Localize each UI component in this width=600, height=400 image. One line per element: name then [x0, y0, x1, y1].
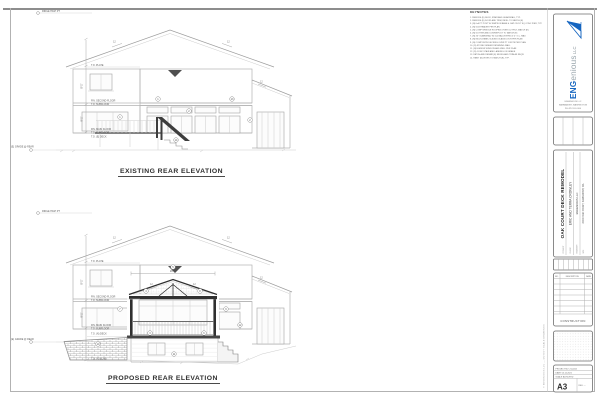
proposed-elevation-drawing: 16'-0" 12 12 12 12 12 5 4 8 7 9 3 10 12 … — [0, 206, 548, 400]
project-client: ERIC AND TERRA CROWLEY — [568, 181, 572, 225]
svg-text:1. REMOVE (E) DECK, STAIR AND: 1. REMOVE (E) DECK, STAIR AND GUARDRAIL,… — [470, 16, 521, 19]
svg-text:12. (N) CONC STAIR AND LANDING: 12. (N) CONC STAIR AND LANDING ON GRADE — [470, 50, 516, 53]
pitch-marks-existing: 12 12 12 — [112, 41, 266, 88]
svg-text:12: 12 — [260, 81, 263, 84]
svg-text:T.O. (N) SLAB: T.O. (N) SLAB — [91, 357, 107, 360]
svg-text:12: 12 — [227, 41, 230, 44]
porch-post-left — [130, 299, 133, 336]
project-info-box: OAK COURT DECK REMODEL ERIC AND TERRA CR… — [554, 150, 593, 257]
svg-text:T.O. PLATE: T.O. PLATE — [91, 260, 104, 263]
svg-text:9'-1": 9'-1" — [81, 116, 84, 121]
issue-status: CONSTRUCTION — [560, 319, 585, 323]
svg-text:14. PAINT (N) WORK TO MATCH (E: 14. PAINT (N) WORK TO MATCH (E), TYP. — [470, 56, 510, 59]
svg-text:T.O. (E) DECK: T.O. (E) DECK — [91, 136, 107, 139]
svg-text:3. (N) 6x6 PT POST W/ SIMPSON: 3. (N) 6x6 PT POST W/ SIMPSON BASE & CAP… — [470, 22, 543, 25]
issue-columns-box — [554, 117, 593, 145]
svg-text:T.O. (N) DECK: T.O. (N) DECK — [91, 332, 107, 335]
svg-text:T.O. SUBFLOOR: T.O. SUBFLOOR — [91, 131, 109, 134]
svg-text:4. (N) GLB HEADER PER PLAN: 4. (N) GLB HEADER PER PLAN — [470, 25, 500, 28]
sheet-row: PROJECT NO: 21-0412 — [556, 368, 578, 370]
sheet-row: DATE: 05.12.2021 — [556, 371, 573, 374]
rev-col-desc: DESCRIPTION — [566, 276, 580, 278]
svg-text:(E) GRADE @ REAR: (E) GRADE @ REAR — [11, 338, 34, 341]
svg-text:8'-1": 8'-1" — [81, 83, 84, 88]
existing-elevation-title: EXISTING REAR ELEVATION — [118, 168, 225, 177]
svg-text:9. (N) COMPOSITE DECKING OVER: 9. (N) COMPOSITE DECKING OVER PT JOISTS … — [470, 41, 526, 44]
firm-contact-line: SAMMAMISH, WASHINGTON — [559, 103, 588, 106]
svg-text:PROJECT: PROJECT — [563, 246, 565, 254]
stamp-box — [554, 331, 593, 361]
copyright-note: © ENGENIOUS LLC — DO NOT SCALE DRAWINGS — [543, 324, 546, 388]
gable-vent — [168, 70, 182, 77]
porch-dimension: 16'-0" — [131, 270, 215, 276]
firm-contact-line: PH 425.555.0100 — [565, 108, 582, 110]
svg-text:8'-1": 8'-1" — [81, 279, 84, 284]
svg-text:13. PATCH AND REPAIR (E) SIDIN: 13. PATCH AND REPAIR (E) SIDING AND TRIM… — [470, 53, 525, 56]
sheet-number: A3 — [557, 383, 568, 392]
sheet-number-box: PROJECT NO: 21-0412 DATE: 05.12.2021 SCA… — [554, 365, 593, 392]
svg-text:5. (N) COMP SHINGLE ROOFING O: 5. (N) COMP SHINGLE ROOFING OVER 15# FEL… — [470, 28, 529, 31]
svg-text:12: 12 — [113, 41, 116, 44]
keynotes-block: KEYNOTES 1. REMOVE (E) DECK, STAIR AND G… — [470, 10, 543, 59]
svg-text:7. (N) 36" GUARDRAIL W/ 2x2 B: 7. (N) 36" GUARDRAIL W/ 2x2 BALUSTERS @ … — [470, 35, 526, 38]
project-name: OAK COURT DECK REMODEL — [560, 169, 565, 239]
existing-elevation-drawing: 12 12 12 1 2 1 13 2 14 RIDGE HIGH PT 8'-… — [0, 0, 548, 206]
svg-text:T.O. SUBFLOOR: T.O. SUBFLOOR — [91, 327, 109, 330]
svg-text:T.O. PLATE: T.O. PLATE — [91, 64, 104, 67]
svg-text:KEYNOTES: KEYNOTES — [470, 10, 489, 14]
svg-text:8. (N) MULTI-PANEL SLIDING GL: 8. (N) MULTI-PANEL SLIDING GLASS DOOR PE… — [470, 38, 523, 41]
svg-text:6. (N) GUTTER AND DOWNSPOUT T: 6. (N) GUTTER AND DOWNSPOUT TO MATCH (E) — [470, 32, 518, 35]
rev-col-date: DATE — [586, 275, 592, 278]
svg-text:12: 12 — [227, 237, 230, 240]
svg-text:12: 12 — [150, 283, 153, 286]
deck-rim — [127, 336, 220, 339]
svg-text:CLIENT: CLIENT — [570, 247, 572, 253]
title-block: © ENGENIOUS LLC — DO NOT SCALE DRAWINGS … — [540, 0, 600, 400]
svg-text:9'-1": 9'-1" — [81, 312, 84, 317]
porch-post-right — [213, 299, 216, 336]
svg-text:10. (N) STONE VENEER RETAINING: 10. (N) STONE VENEER RETAINING WALL — [470, 44, 511, 47]
sheet-row: SCALE: AS NOTED — [556, 375, 574, 378]
svg-text:2. REMOVE (E) DOOR AND TRIM,: 2. REMOVE (E) DOOR AND TRIM, INFILL TO M… — [470, 19, 523, 22]
rev-col-no: NO. — [555, 276, 559, 278]
svg-text:T.O. SUBFLOOR: T.O. SUBFLOOR — [91, 103, 109, 106]
drawing-sheet: 12 12 12 1 2 1 13 2 14 RIDGE HIGH PT 8'-… — [0, 0, 600, 400]
porch-beam — [129, 296, 217, 299]
svg-text:12: 12 — [193, 283, 196, 286]
sheet-rev: REV: — — [579, 385, 586, 387]
proposed-elevation-title: PROPOSED REAR ELEVATION — [106, 375, 220, 384]
logo-box: ENGenious LLC ENGENIOUS LLC SAMMAMISH, W… — [554, 14, 593, 112]
svg-text:16'-0": 16'-0" — [170, 270, 176, 273]
svg-text:T.O. SUBFLOOR: T.O. SUBFLOOR — [91, 299, 109, 302]
svg-text:(E) GRADE @ REAR: (E) GRADE @ REAR — [11, 146, 34, 149]
svg-text:RIDGE HIGH PT: RIDGE HIGH PT — [42, 10, 60, 13]
revision-table: NO. DESCRIPTION DATE CONSTRUCTION — [554, 273, 593, 326]
svg-text:ENGINEER: ENGINEER — [577, 244, 579, 254]
svg-text:RIDGE HIGH PT: RIDGE HIGH PT — [42, 210, 60, 213]
fields-strip — [554, 259, 593, 270]
svg-text:12: 12 — [260, 277, 263, 280]
firm-contact-line: ENGENIOUS LLC — [565, 101, 582, 103]
svg-text:12: 12 — [113, 237, 116, 240]
project-firm: ENGENIOUS LLC — [575, 193, 579, 215]
project-address: 20000 OAK COURT, SAMMAMISH, WA — [582, 183, 585, 223]
svg-text:11. (N) EGRESS WINDOW AND WELL: 11. (N) EGRESS WINDOW AND WELL PER PLAN — [470, 47, 517, 50]
